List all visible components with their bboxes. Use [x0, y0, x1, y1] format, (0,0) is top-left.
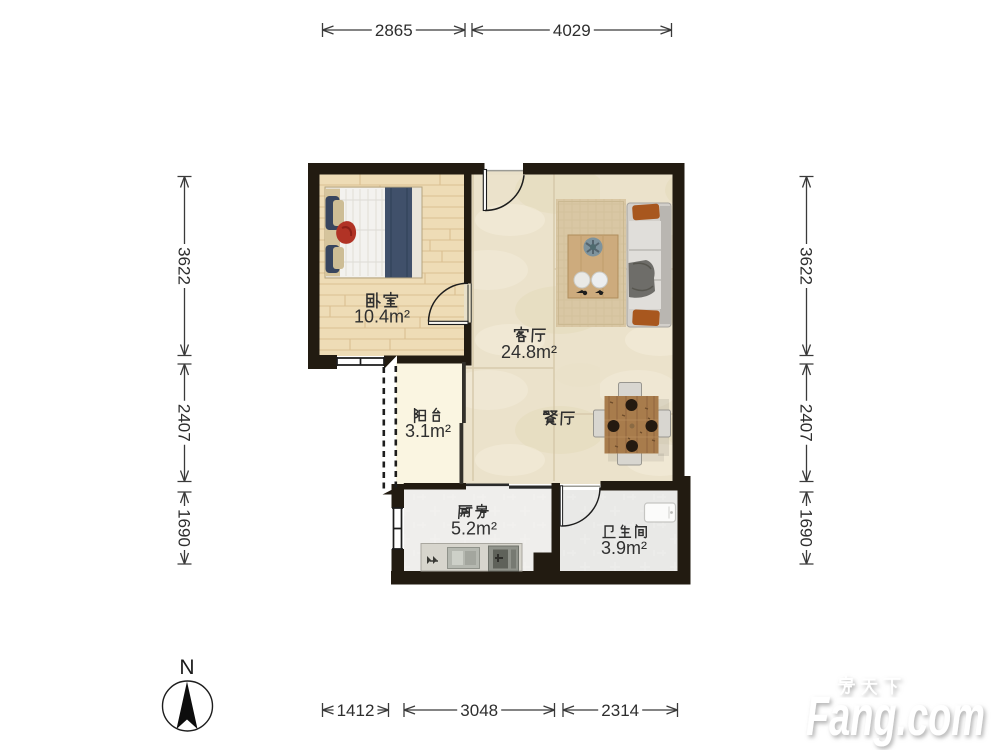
- svg-text:3622: 3622: [175, 247, 194, 285]
- svg-text:2865: 2865: [375, 21, 413, 40]
- svg-text:2407: 2407: [797, 404, 816, 442]
- svg-text:4029: 4029: [553, 21, 591, 40]
- svg-text:3622: 3622: [797, 247, 816, 285]
- svg-text:1690: 1690: [797, 509, 816, 547]
- svg-text:3048: 3048: [460, 701, 498, 720]
- svg-text:1412: 1412: [337, 701, 375, 720]
- svg-text:Fang.com: Fang.com: [806, 684, 985, 747]
- svg-text:24.8m²: 24.8m²: [501, 342, 557, 362]
- svg-text:5.2m²: 5.2m²: [451, 519, 497, 539]
- svg-text:3.9m²: 3.9m²: [601, 538, 647, 558]
- svg-text:10.4m²: 10.4m²: [354, 307, 410, 327]
- svg-text:1690: 1690: [175, 509, 194, 547]
- svg-text:2407: 2407: [175, 404, 194, 442]
- svg-text:2314: 2314: [601, 701, 639, 720]
- svg-text:N: N: [179, 656, 194, 679]
- svg-text:3.1m²: 3.1m²: [405, 421, 451, 441]
